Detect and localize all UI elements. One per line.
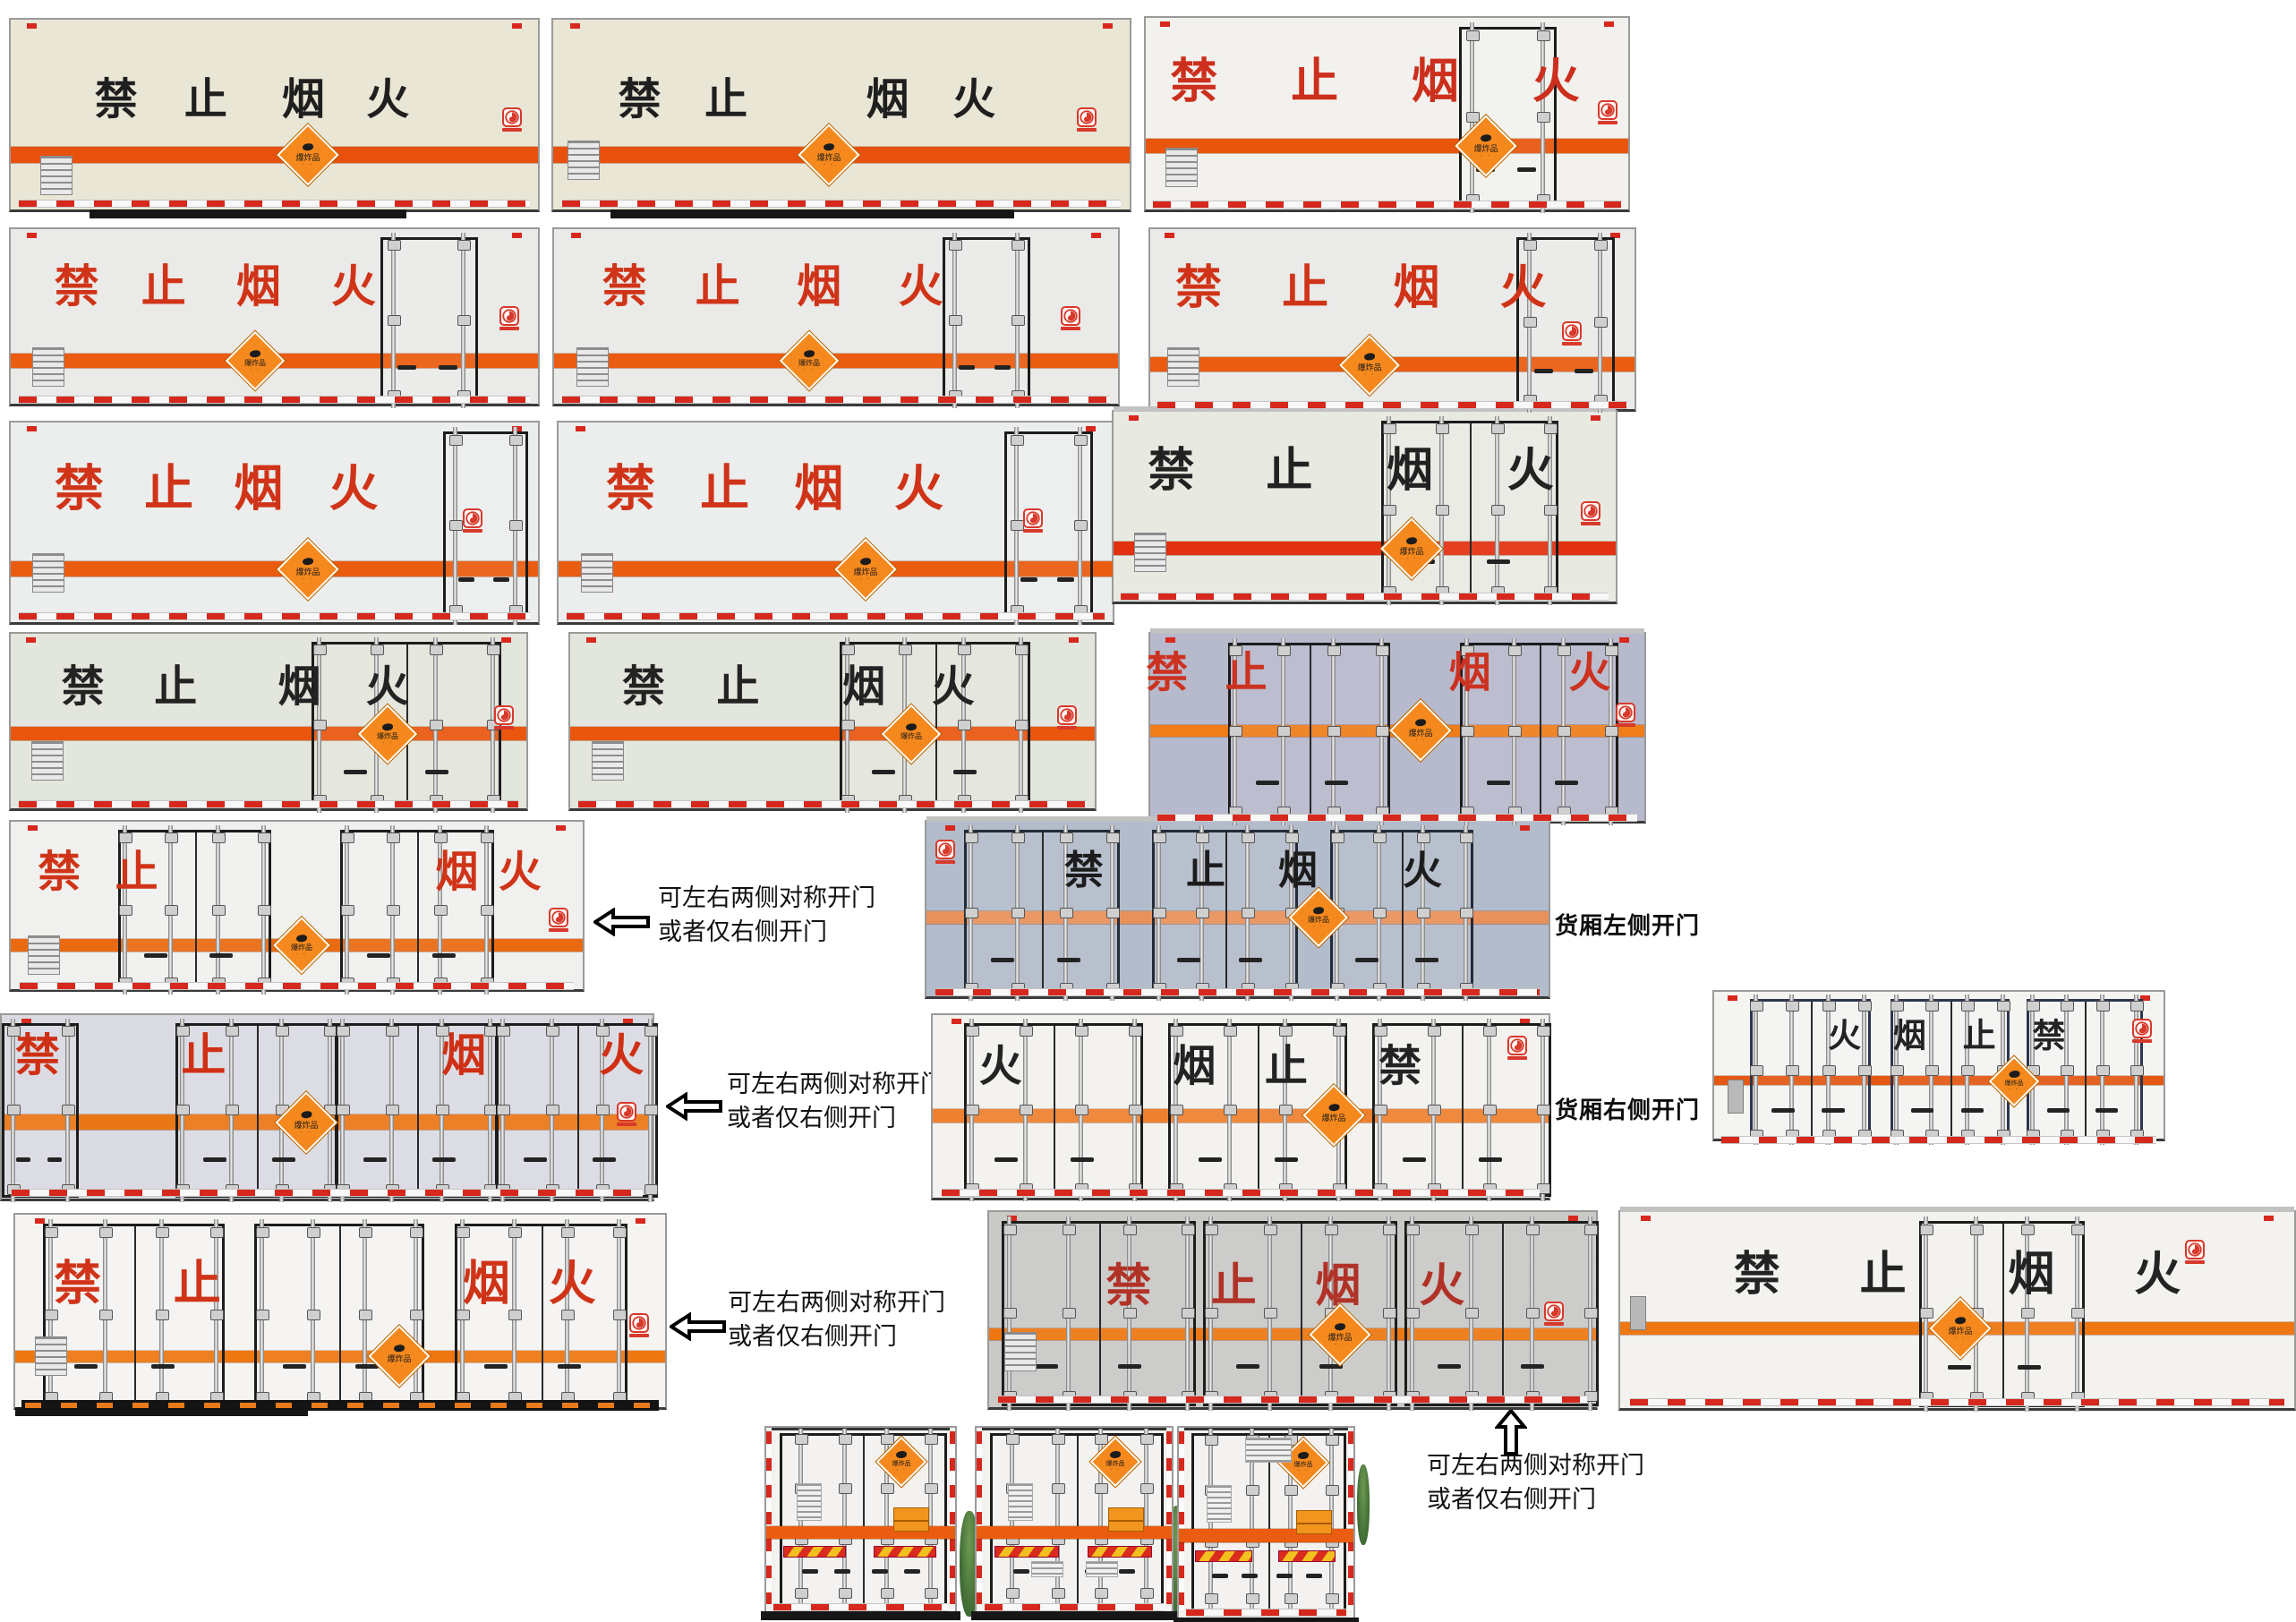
hinge-knuckle bbox=[965, 908, 978, 918]
no-fire-text-char: 止 bbox=[1225, 652, 1267, 694]
door-lock-handle bbox=[1555, 781, 1578, 785]
hinge-knuckle bbox=[1750, 1065, 1763, 1076]
explosion-glyph bbox=[1364, 354, 1375, 361]
no-fire-text-char: 烟 bbox=[2008, 1251, 2054, 1298]
hinge-knuckle bbox=[1466, 30, 1480, 41]
hinge-knuckle bbox=[1196, 832, 1209, 843]
rear-edge-reflector bbox=[1166, 1431, 1172, 1604]
brand-logo bbox=[494, 705, 514, 730]
brand-logo-bar bbox=[1598, 121, 1617, 124]
hinge-knuckle bbox=[596, 1105, 610, 1115]
door-lock-handle bbox=[994, 365, 1011, 370]
hinge-knuckle bbox=[1011, 435, 1024, 446]
hinge-knuckle bbox=[1170, 1105, 1183, 1115]
brand-logo-bar bbox=[935, 860, 955, 864]
placard-label: 爆炸品 bbox=[277, 1118, 334, 1130]
hinge-knuckle bbox=[256, 1227, 269, 1238]
brand-logo bbox=[1598, 100, 1617, 124]
placard-dots: · · bbox=[1383, 557, 1440, 561]
truck-box-19: 禁止烟火爆炸品· · bbox=[987, 1210, 1598, 1410]
door-hinge-rod bbox=[1208, 1216, 1213, 1411]
hinge-knuckle bbox=[2096, 1001, 2110, 1012]
door-hinge-rod bbox=[1185, 1216, 1190, 1411]
door-seam bbox=[1811, 1002, 1813, 1138]
no-fire-text-char: 禁 bbox=[1148, 448, 1194, 494]
rear-edge-reflector bbox=[1179, 1431, 1184, 1610]
placard-dots: · · bbox=[277, 1130, 334, 1134]
corner-marker bbox=[945, 825, 955, 831]
no-fire-text-char: 火 bbox=[1568, 652, 1610, 694]
door-lock-handle bbox=[1119, 1569, 1135, 1574]
no-fire-text-char: 烟 bbox=[1394, 265, 1440, 312]
no-fire-text-char: 火 bbox=[952, 78, 995, 121]
hinge-knuckle bbox=[226, 1026, 239, 1037]
hinge-knuckle bbox=[925, 1483, 938, 1494]
explosion-glyph bbox=[1415, 719, 1426, 726]
door-hinge-rod bbox=[1377, 825, 1381, 1001]
hinge-knuckle bbox=[613, 1310, 627, 1320]
door-hinge-rod bbox=[345, 825, 349, 995]
hinge-knuckle bbox=[1526, 1308, 1540, 1319]
door-lock-handle bbox=[1403, 1157, 1426, 1162]
hinge-knuckle bbox=[387, 832, 400, 843]
hinge-knuckle bbox=[1011, 832, 1025, 843]
decor: 爆炸品· · bbox=[1988, 1055, 2039, 1106]
hinge-knuckle bbox=[1327, 726, 1341, 737]
hinge-knuckle bbox=[839, 1434, 852, 1445]
door-lock-handle bbox=[558, 1364, 581, 1369]
no-fire-text-char: 火 bbox=[1403, 851, 1442, 891]
truck-box-15: 禁止烟火爆炸品· · bbox=[0, 1013, 654, 1201]
hinge-knuckle bbox=[313, 720, 327, 730]
explosion-glyph bbox=[1313, 907, 1324, 914]
brand-logo-mark bbox=[2132, 1019, 2152, 1038]
hinge-knuckle bbox=[509, 520, 523, 531]
brand-logo bbox=[1023, 508, 1043, 533]
no-fire-text-char: 烟 bbox=[282, 78, 325, 121]
vent-grille bbox=[568, 141, 600, 180]
hinge-knuckle bbox=[1052, 1588, 1065, 1599]
hinge-knuckle bbox=[795, 1434, 808, 1445]
door-hinge-rod bbox=[1431, 1019, 1436, 1201]
brand-logo-mark bbox=[1507, 1036, 1527, 1055]
hinge-knuckle bbox=[337, 1026, 350, 1037]
hinge-knuckle bbox=[387, 905, 400, 916]
hinge-knuckle bbox=[1129, 1105, 1142, 1115]
hinge-knuckle bbox=[1584, 1308, 1598, 1319]
corner-marker bbox=[1619, 637, 1629, 643]
hinge-knuckle bbox=[434, 905, 448, 916]
brand-logo bbox=[2185, 1240, 2205, 1264]
no-fire-text-char: 火 bbox=[599, 1033, 644, 1078]
no-fire-text-char: 火 bbox=[1828, 1020, 1861, 1053]
no-fire-text-char: 烟 bbox=[1315, 1263, 1361, 1309]
rear-edge-reflector bbox=[950, 1431, 955, 1604]
truck-box-7: 禁止烟火爆炸品· · bbox=[9, 421, 540, 625]
brand-logo-bar bbox=[2132, 1039, 2152, 1043]
hinge-knuckle bbox=[1224, 1026, 1237, 1037]
hinge-knuckle bbox=[99, 1227, 113, 1238]
door-lock-handle bbox=[2018, 1365, 2041, 1370]
hinge-knuckle bbox=[509, 435, 523, 446]
placard-label: 爆炸品 bbox=[1305, 1111, 1361, 1123]
door-seam bbox=[2085, 1002, 2087, 1138]
box-roof-edge bbox=[1620, 1207, 2294, 1212]
hinge-knuckle bbox=[1095, 1588, 1108, 1599]
hinge-knuckle bbox=[1246, 1593, 1259, 1604]
door-hinge-rod bbox=[1527, 233, 1532, 413]
door-hinge-rod bbox=[1267, 1216, 1272, 1411]
decor: 爆炸品· · bbox=[226, 331, 285, 390]
hinge-knuckle bbox=[1436, 423, 1449, 434]
hinge-knuckle bbox=[1006, 1434, 1020, 1445]
reflector-strip bbox=[19, 200, 530, 208]
corner-marker bbox=[1160, 21, 1170, 27]
door-seam bbox=[1462, 1026, 1464, 1194]
door-hinge-rod bbox=[1862, 995, 1866, 1145]
truck-box-2: 禁止烟火爆炸品· · bbox=[551, 18, 1131, 212]
door-hinge-rod bbox=[103, 1219, 107, 1411]
placard-text: 爆炸品· · bbox=[279, 558, 337, 582]
hinge-knuckle bbox=[1196, 908, 1209, 918]
door-lock-handle bbox=[1948, 1365, 1971, 1370]
placard-line bbox=[894, 1520, 928, 1522]
hinge-knuckle bbox=[1326, 1435, 1339, 1446]
hinge-knuckle bbox=[2027, 1001, 2040, 1012]
no-fire-text-char: 火 bbox=[365, 665, 408, 708]
hinge-knuckle bbox=[1558, 726, 1571, 737]
hinge-knuckle bbox=[1374, 1105, 1387, 1115]
door-hinge-rod bbox=[1924, 1216, 1928, 1412]
vent-table bbox=[1207, 1485, 1232, 1523]
hinge-knuckle bbox=[1020, 1026, 1033, 1037]
hinge-knuckle bbox=[337, 1105, 350, 1115]
brand-logo-bar bbox=[1077, 128, 1097, 132]
corner-marker bbox=[1069, 637, 1079, 643]
hazard-hatch-strip bbox=[994, 1546, 1059, 1558]
cargo-door bbox=[1004, 431, 1093, 620]
hinge-knuckle bbox=[1891, 1065, 1904, 1076]
door-lock-handle bbox=[1057, 577, 1074, 582]
vent-table bbox=[797, 1483, 822, 1521]
bumper-bar bbox=[610, 209, 1014, 218]
door-lock-handle bbox=[1911, 1108, 1933, 1113]
hinge-knuckle bbox=[1491, 505, 1505, 516]
placard-dots: · · bbox=[361, 741, 414, 746]
door-hinge-rod bbox=[390, 825, 395, 995]
corner-marker bbox=[512, 233, 522, 238]
hinge-knuckle bbox=[1052, 1483, 1065, 1494]
no-fire-text-char: 禁 bbox=[1734, 1251, 1780, 1298]
door-lock-handle bbox=[834, 1569, 850, 1574]
left-arrow-icon bbox=[666, 1092, 723, 1121]
hinge-knuckle bbox=[1011, 315, 1025, 326]
hinge-knuckle bbox=[841, 645, 855, 655]
vent-grille bbox=[1134, 533, 1166, 572]
truck-box-14: 禁止烟火爆炸品· · bbox=[925, 820, 1550, 999]
no-fire-text-char: 禁 bbox=[619, 78, 661, 121]
door-hinge-rod bbox=[1227, 1019, 1232, 1201]
door-lock-handle bbox=[484, 1364, 508, 1369]
reflector-strip bbox=[1153, 201, 1621, 209]
hinge-knuckle bbox=[1465, 1225, 1479, 1235]
no-fire-text-char: 烟 bbox=[866, 78, 909, 121]
placard-label: 爆炸品 bbox=[1292, 915, 1345, 925]
left-arrow-icon bbox=[593, 908, 651, 936]
door-lock-handle bbox=[1239, 958, 1262, 962]
truck-box-8: 禁止烟火爆炸品· · bbox=[557, 421, 1114, 625]
door-lock-handle bbox=[1438, 1364, 1461, 1369]
hinge-knuckle bbox=[2130, 1001, 2144, 1012]
door-lock-handle bbox=[593, 1157, 616, 1162]
no-fire-text-char: 禁 bbox=[1146, 652, 1188, 694]
hinge-knuckle bbox=[613, 1227, 627, 1238]
no-fire-text-char: 烟 bbox=[794, 464, 843, 513]
reflector-strip bbox=[1157, 401, 1627, 409]
reflector-dashes bbox=[25, 1403, 655, 1408]
hinge-knuckle bbox=[1331, 832, 1344, 843]
no-fire-text-char: 禁 bbox=[62, 665, 105, 708]
no-fire-text-char: 烟 bbox=[1173, 1045, 1216, 1088]
door-seam bbox=[417, 1026, 419, 1195]
truck-box-6: 禁止烟火爆炸品· · bbox=[1148, 227, 1636, 412]
info-plate bbox=[1630, 1296, 1646, 1330]
vent-grille bbox=[35, 1336, 67, 1376]
hinge-knuckle bbox=[1129, 1026, 1142, 1037]
placard-dots: · · bbox=[371, 1364, 428, 1369]
door-lock-handle bbox=[47, 1157, 62, 1162]
brand-logo-mark bbox=[502, 107, 522, 127]
hinge-knuckle bbox=[226, 1105, 239, 1115]
no-fire-text-char: 禁 bbox=[55, 264, 99, 309]
decor: 爆炸品· · bbox=[1302, 1084, 1364, 1146]
hinge-knuckle bbox=[1011, 908, 1025, 918]
brand-logo bbox=[1057, 705, 1077, 730]
hinge-knuckle bbox=[1060, 908, 1073, 918]
reflector-strip bbox=[1157, 814, 1636, 822]
placard-dots: · · bbox=[837, 577, 894, 582]
corner-marker bbox=[586, 637, 596, 643]
door-hinge-rod bbox=[969, 1019, 974, 1201]
truck-box-9: 禁止烟火爆炸品· · bbox=[1112, 410, 1617, 604]
hinge-knuckle bbox=[165, 905, 178, 916]
hinge-knuckle bbox=[1417, 832, 1430, 843]
hinge-knuckle bbox=[644, 1026, 658, 1037]
reflector-strip bbox=[12, 1189, 643, 1197]
no-fire-text-char: 火 bbox=[932, 665, 975, 708]
corner-marker bbox=[1641, 1216, 1651, 1221]
door-lock-handle bbox=[872, 1569, 888, 1574]
no-fire-text-char: 火 bbox=[1419, 1263, 1464, 1309]
door-hinge-rod bbox=[1144, 1429, 1148, 1609]
hinge-knuckle bbox=[2071, 1225, 2085, 1235]
truck-box-13: 禁止烟火爆炸品· · bbox=[9, 820, 585, 992]
bumper-bar bbox=[1174, 1618, 1359, 1622]
hinge-knuckle bbox=[1052, 1434, 1065, 1445]
hinge-knuckle bbox=[1015, 720, 1029, 730]
annotation-door-note-1: 可左右两侧对称开门 或者仅右侧开门 bbox=[658, 881, 875, 949]
door-lock-handle bbox=[1521, 1364, 1544, 1369]
figure-canvas: 可左右两侧对称开门 或者仅右侧开门 可左右两侧对称开门 或者仅右侧开门 可左右两… bbox=[0, 0, 2296, 1622]
hinge-knuckle bbox=[546, 1026, 559, 1037]
door-seam bbox=[257, 1026, 259, 1195]
hinge-knuckle bbox=[497, 1026, 510, 1037]
hinge-knuckle bbox=[1246, 1485, 1259, 1496]
cargo-door bbox=[943, 237, 1030, 404]
truck-box-3: 禁止烟火爆炸品· · bbox=[1144, 16, 1630, 212]
door-lock-handle bbox=[283, 1364, 306, 1369]
brand-logo bbox=[1562, 321, 1582, 346]
hinge-knuckle bbox=[341, 832, 354, 843]
no-fire-text-char: 禁 bbox=[55, 464, 104, 513]
no-fire-text-char: 禁 bbox=[95, 78, 138, 121]
door-lock-handle bbox=[74, 1364, 98, 1369]
door-hinge-rod bbox=[389, 1019, 394, 1202]
door-lock-handle bbox=[1355, 958, 1378, 962]
door-lock-handle bbox=[363, 1157, 387, 1162]
door-hinge-rod bbox=[65, 1019, 70, 1202]
placard-text: 爆炸品· · bbox=[1342, 354, 1397, 378]
hinge-knuckle bbox=[1123, 1225, 1137, 1235]
hinge-knuckle bbox=[307, 1227, 320, 1238]
left-arrow-icon bbox=[670, 1312, 727, 1341]
reflector-strip bbox=[578, 800, 1087, 808]
door-hinge-rod bbox=[1157, 825, 1161, 1001]
door-hinge-rod bbox=[216, 825, 220, 995]
hinge-knuckle bbox=[1106, 908, 1120, 918]
placard-dots: · · bbox=[1392, 738, 1449, 743]
hinge-knuckle bbox=[1822, 1001, 1836, 1012]
brand-logo bbox=[1507, 1036, 1527, 1060]
decor: 爆炸品· · bbox=[275, 1091, 337, 1153]
hinge-knuckle bbox=[1417, 908, 1430, 918]
hinge-knuckle bbox=[1383, 1308, 1396, 1319]
door-seam bbox=[339, 1226, 341, 1404]
door-hinge-rod bbox=[48, 1219, 53, 1411]
door-hinge-rod bbox=[1929, 995, 1933, 1145]
door-hinge-rod bbox=[1541, 1019, 1545, 1201]
vent-grille bbox=[28, 935, 60, 975]
decor: 爆炸品· · bbox=[277, 124, 338, 185]
annotation-door-note-4: 可左右两侧对称开门 或者仅右侧开门 bbox=[1427, 1448, 1644, 1516]
hinge-knuckle bbox=[546, 1105, 559, 1115]
reflector-strip bbox=[773, 1603, 947, 1611]
no-fire-text-char: 烟 bbox=[1412, 57, 1459, 105]
hinge-knuckle bbox=[1524, 240, 1537, 251]
hinge-knuckle bbox=[1383, 505, 1396, 516]
door-hinge-rod bbox=[1331, 638, 1336, 825]
placard-dots: · · bbox=[279, 577, 337, 582]
explosive-placard-icon: 爆炸品· · bbox=[1383, 520, 1440, 577]
door-lock-handle bbox=[1325, 781, 1348, 785]
annotation-line: 可左右两侧对称开门 bbox=[1427, 1448, 1644, 1482]
no-fire-text-char: 止 bbox=[1291, 57, 1338, 105]
no-fire-text-char: 烟 bbox=[1278, 851, 1318, 891]
hinge-knuckle bbox=[62, 1105, 75, 1115]
door-lock-handle bbox=[1071, 1157, 1094, 1162]
no-fire-text-char: 止 bbox=[1860, 1251, 1907, 1298]
cargo-door bbox=[455, 1224, 627, 1406]
hinge-knuckle bbox=[430, 645, 443, 655]
placard-text: 爆炸品· · bbox=[1292, 907, 1345, 929]
cargo-door bbox=[1404, 1221, 1599, 1406]
hinge-knuckle bbox=[561, 1227, 575, 1238]
hazard-hatch-strip bbox=[783, 1546, 846, 1558]
explosion-glyph bbox=[296, 935, 307, 942]
decor: 爆炸品· · bbox=[834, 538, 896, 600]
brand-logo bbox=[2132, 1019, 2152, 1043]
door-lock-handle bbox=[991, 958, 1014, 962]
door-seam bbox=[2002, 1224, 2004, 1404]
door-lock-handle bbox=[439, 365, 457, 370]
brand-logo bbox=[1061, 306, 1080, 330]
door-lock-handle bbox=[1177, 958, 1200, 962]
placard-dots: · · bbox=[1457, 154, 1515, 158]
explosion-glyph bbox=[1406, 537, 1417, 544]
door-lock-handle bbox=[953, 770, 977, 774]
hinge-knuckle bbox=[881, 1483, 894, 1494]
door-lock-handle bbox=[1275, 1157, 1298, 1162]
cargo-door bbox=[380, 237, 478, 404]
brand-logo-bar bbox=[499, 327, 519, 330]
door-hinge-rod bbox=[1379, 638, 1384, 825]
hinge-knuckle bbox=[1428, 1026, 1441, 1037]
door-lock-handle bbox=[1020, 577, 1037, 582]
placard-text: 爆炸品· · bbox=[1457, 134, 1515, 158]
hinge-knuckle bbox=[386, 1026, 399, 1037]
door-hinge-rod bbox=[260, 1219, 264, 1411]
door-hinge-rod bbox=[1019, 637, 1023, 813]
no-fire-text-char: 火 bbox=[329, 464, 378, 513]
hinge-knuckle bbox=[1460, 832, 1473, 843]
placard-text: 爆炸品· · bbox=[371, 1345, 428, 1369]
door-hinge-rod bbox=[214, 1219, 218, 1411]
hinge-knuckle bbox=[1406, 1225, 1420, 1235]
door-lock-handle bbox=[16, 1157, 30, 1162]
hinge-knuckle bbox=[2130, 1065, 2144, 1076]
reflector-strip bbox=[567, 612, 1104, 620]
corner-marker bbox=[27, 23, 37, 29]
door-lock-handle bbox=[2047, 1108, 2070, 1113]
explosion-glyph bbox=[303, 143, 313, 150]
placard-label: 爆炸品 bbox=[361, 731, 414, 741]
brand-logo-mark bbox=[1581, 501, 1600, 521]
explosive-placard-icon: 爆炸品· · bbox=[361, 707, 414, 761]
corner-marker bbox=[952, 1019, 961, 1024]
reflector-strip bbox=[935, 988, 1539, 996]
hinge-knuckle bbox=[119, 832, 132, 843]
door-hinge-rod bbox=[340, 1019, 345, 1202]
truck-box-12: 禁止烟火爆炸品· · bbox=[1148, 632, 1646, 824]
door-lock-handle bbox=[1199, 1157, 1222, 1162]
hinge-knuckle bbox=[156, 1227, 169, 1238]
door-hinge-rod bbox=[2075, 1216, 2079, 1412]
hinge-knuckle bbox=[1153, 832, 1166, 843]
hinge-knuckle bbox=[1285, 1593, 1298, 1604]
vent-grille bbox=[592, 741, 624, 781]
brand-logo-mark bbox=[1616, 703, 1635, 722]
door-lock-handle bbox=[1236, 1364, 1259, 1369]
hinge-knuckle bbox=[1060, 832, 1073, 843]
reflector-strip bbox=[1186, 1609, 1346, 1617]
decor: 爆炸品· · bbox=[273, 917, 330, 974]
explosion-glyph bbox=[896, 1451, 907, 1458]
hinge-knuckle bbox=[1242, 908, 1255, 918]
placard-dots: · · bbox=[1311, 1343, 1369, 1347]
no-fire-text-char: 烟 bbox=[278, 665, 321, 708]
explosive-placard-icon: 爆炸品· · bbox=[1311, 1306, 1369, 1363]
cargo-door bbox=[43, 1224, 225, 1406]
